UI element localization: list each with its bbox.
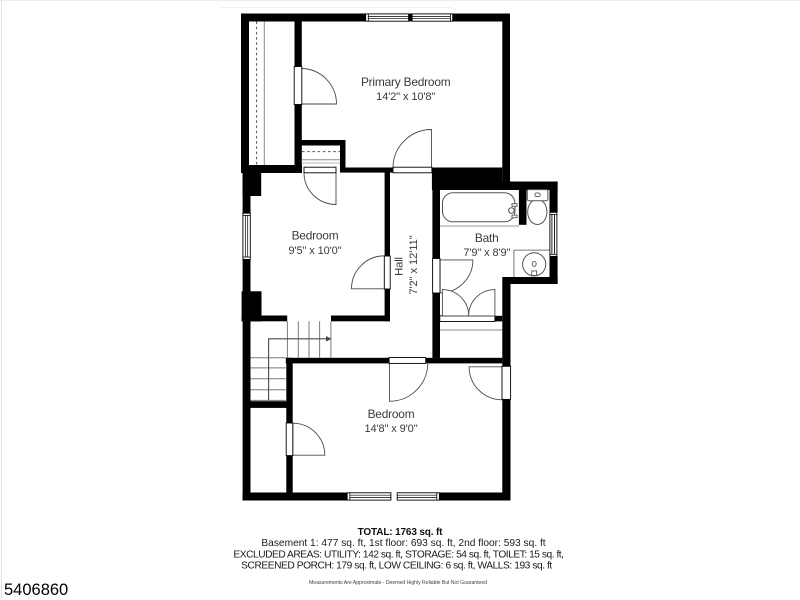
svg-text:14'8" x 9'0": 14'8" x 9'0" [364,423,417,435]
svg-text:Bedroom: Bedroom [368,407,415,421]
svg-text:SCREENED PORCH: 179 sq. ft, LO: SCREENED PORCH: 179 sq. ft, LOW CEILING:… [241,561,552,572]
svg-text:TOTAL: 1763 sq. ft: TOTAL: 1763 sq. ft [358,527,444,538]
svg-text:Primary Bedroom: Primary Bedroom [361,75,451,89]
svg-text:EXCLUDED AREAS: UTILITY: 142 s: EXCLUDED AREAS: UTILITY: 142 sq. ft, STO… [233,550,563,561]
svg-text:Basement 1: 477 sq. ft, 1st fl: Basement 1: 477 sq. ft, 1st floor: 693 s… [261,538,545,549]
svg-text:Bedroom: Bedroom [292,229,339,243]
svg-text:Bath: Bath [475,231,499,245]
svg-text:Measurements Are Approximate -: Measurements Are Approximate - Deemed Hi… [309,580,487,586]
svg-text:14'2" x 10'8": 14'2" x 10'8" [376,91,435,103]
svg-text:7'2" x 12'11": 7'2" x 12'11" [408,235,420,294]
svg-text:Hall: Hall [394,257,406,276]
svg-text:7'9" x 8'9": 7'9" x 8'9" [463,247,510,259]
svg-text:9'5" x 10'0": 9'5" x 10'0" [288,245,341,257]
svg-text:5406860: 5406860 [4,581,68,599]
